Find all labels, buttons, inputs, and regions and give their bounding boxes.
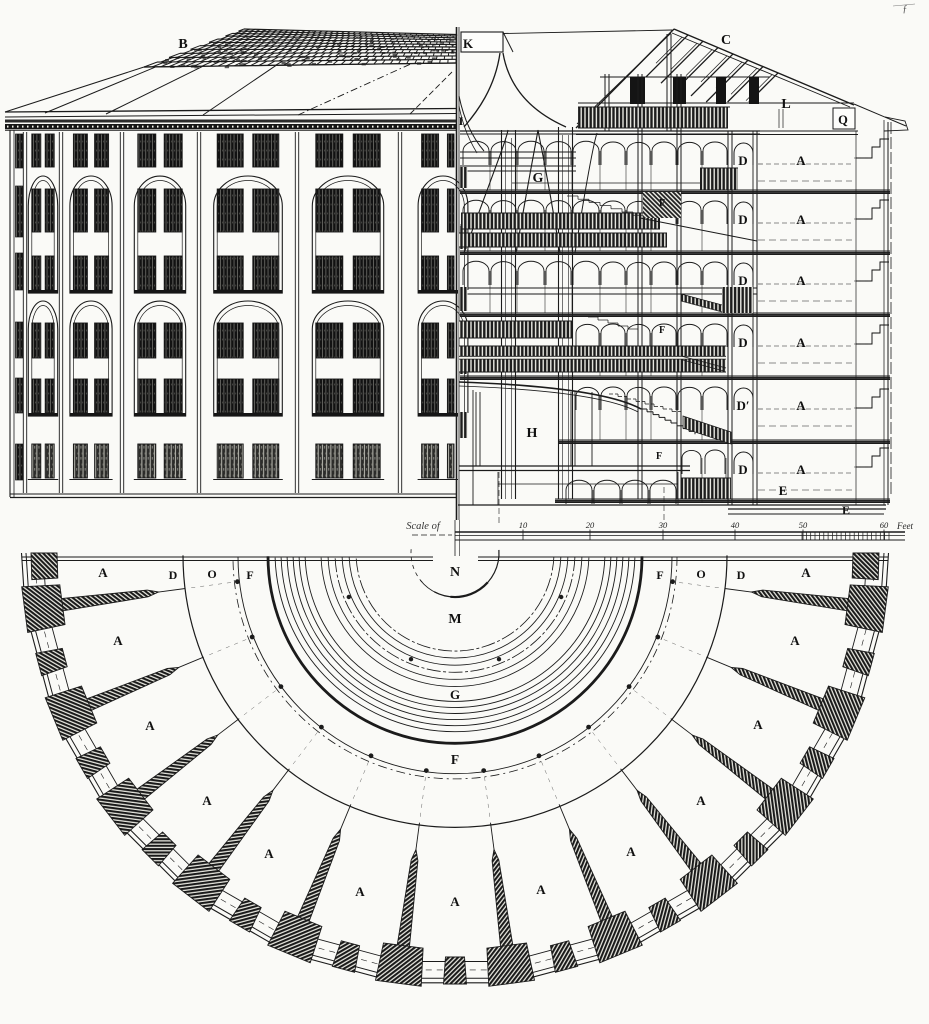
svg-text:A: A	[801, 565, 811, 580]
svg-text:F: F	[659, 325, 665, 336]
svg-text:B: B	[178, 37, 187, 52]
svg-text:F: F	[451, 752, 459, 767]
svg-text:D′: D′	[736, 398, 749, 413]
svg-text:M: M	[448, 612, 461, 627]
svg-text:A: A	[145, 718, 155, 733]
svg-text:G: G	[533, 171, 544, 186]
svg-text:D: D	[738, 212, 747, 227]
svg-text:F: F	[656, 451, 662, 462]
svg-text:10: 10	[519, 520, 528, 530]
svg-text:O: O	[207, 567, 216, 581]
svg-text:D: D	[738, 153, 747, 168]
svg-text:C: C	[721, 33, 731, 48]
svg-text:40: 40	[731, 520, 740, 530]
svg-text:E: E	[779, 483, 788, 498]
svg-text:A: A	[355, 884, 365, 899]
svg-text:D: D	[737, 568, 746, 582]
svg-text:I: I	[459, 114, 464, 128]
svg-text:D: D	[738, 273, 747, 288]
svg-text:F: F	[246, 568, 253, 582]
svg-text:A: A	[796, 212, 806, 227]
svg-text:A: A	[790, 633, 800, 648]
svg-text:A: A	[796, 273, 806, 288]
svg-text:A: A	[696, 793, 706, 808]
svg-text:20: 20	[586, 520, 595, 530]
svg-text:F: F	[659, 198, 665, 209]
svg-text:N: N	[450, 565, 460, 580]
svg-text:A: A	[536, 882, 546, 897]
svg-text:L: L	[781, 97, 790, 112]
svg-text:A: A	[753, 717, 763, 732]
svg-text:E: E	[842, 503, 850, 517]
svg-text:K: K	[463, 36, 474, 51]
svg-text:A: A	[113, 633, 123, 648]
svg-text:Q: Q	[838, 113, 848, 127]
svg-text:50: 50	[799, 520, 808, 530]
svg-text:A: A	[626, 844, 636, 859]
svg-text:D: D	[738, 335, 747, 350]
svg-text:A: A	[98, 565, 108, 580]
svg-text:D: D	[738, 462, 747, 477]
svg-text:A: A	[796, 335, 806, 350]
svg-text:60: 60	[880, 520, 889, 530]
svg-text:O: O	[696, 567, 705, 581]
svg-text:A: A	[796, 153, 806, 168]
svg-text:Scale of: Scale of	[406, 521, 442, 532]
svg-text:Feet: Feet	[896, 521, 913, 531]
svg-text:H: H	[527, 426, 538, 441]
svg-text:A: A	[450, 894, 460, 909]
svg-text:A: A	[264, 846, 274, 861]
svg-text:A: A	[202, 793, 212, 808]
svg-text:A: A	[796, 462, 806, 477]
svg-text:D: D	[169, 568, 178, 582]
svg-text:30: 30	[658, 520, 668, 530]
svg-text:G: G	[450, 687, 460, 702]
svg-text:A: A	[796, 398, 806, 413]
svg-text:F: F	[656, 568, 663, 582]
svg-text:ƒ: ƒ	[903, 4, 908, 15]
